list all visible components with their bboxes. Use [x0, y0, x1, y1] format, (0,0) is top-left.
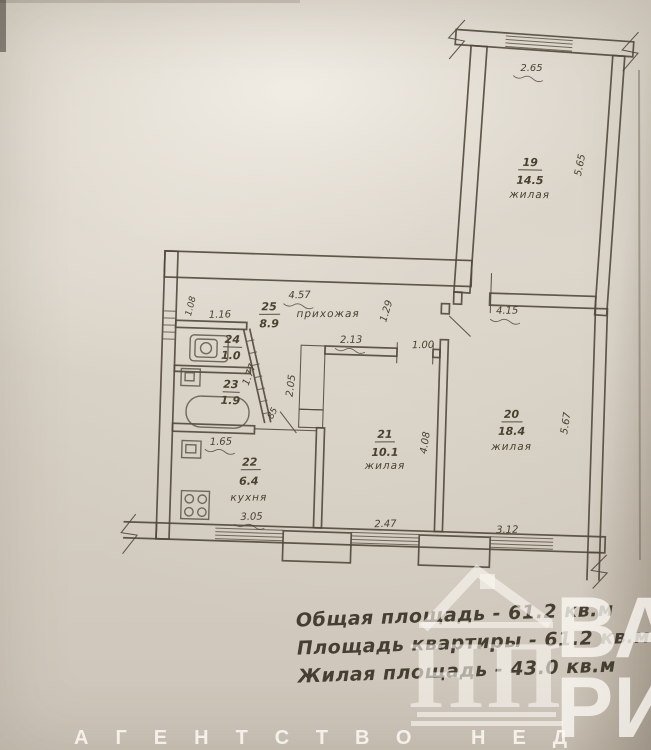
dim-wc-top: 1.16: [209, 309, 231, 320]
room-21-name: жилая: [364, 460, 406, 472]
wall-pier-1: [282, 531, 351, 563]
room-24-number: 24: [224, 333, 240, 346]
watermark-agency-text: АГЕНТСТВО НЕД: [74, 727, 594, 749]
page-fold-line: [639, 70, 640, 560]
dim-room21-window: 2.47: [374, 519, 397, 530]
dim-room21-right: 4.08: [419, 431, 433, 455]
room-25-area: 8.9: [259, 317, 279, 330]
room-19-name: жилая: [508, 189, 550, 202]
room19-left-wall: [454, 46, 487, 294]
scanned-floor-plan-page: 2.65 5.65 19 14.5 жилая: [0, 0, 651, 750]
dim-room19-right: 5.65: [573, 153, 588, 177]
room20-top-wall-a: [454, 292, 462, 304]
kitchen-window: [215, 528, 283, 541]
room-23-area: 1.9: [220, 394, 240, 408]
watermark-base-1: [417, 712, 556, 717]
room-19-label: 19 14.5 жилая: [508, 156, 551, 202]
room-20-number: 20: [504, 408, 520, 421]
room-20-label: 20 18.4 жилая: [490, 408, 532, 453]
room21-window: [351, 532, 419, 545]
room20-window: [490, 537, 553, 549]
dim-room20-right: 5.67: [559, 411, 573, 435]
room-22-name: кухня: [230, 492, 267, 504]
page-edge-top: [0, 0, 300, 3]
wall-stub-bl2: [123, 538, 156, 539]
dim-mark: [490, 319, 520, 325]
room-21-area: 10.1: [371, 446, 398, 459]
wall-pier-2: [418, 535, 490, 567]
left-wall-vent: [162, 311, 176, 339]
kitchen-door-sill: [255, 429, 317, 431]
room19-right-wall: [595, 55, 625, 315]
dim-corridor: 2.05: [285, 374, 299, 397]
dim-mark: [205, 449, 235, 455]
room-21-number: 21: [377, 428, 392, 441]
dim-room19-window: 2.65: [520, 63, 542, 74]
wall-break-top-left: [447, 19, 466, 60]
dim-hall-pass: 1.29: [378, 299, 395, 323]
dim-room20-window: 3.12: [496, 525, 518, 536]
dim-room21-top: 2.13: [340, 335, 362, 346]
room-22-label: 22 6.4 кухня: [230, 456, 267, 504]
floor-plan-svg: 2.65 5.65 19 14.5 жилая: [0, 0, 651, 750]
wall-break-bottom-left: [121, 514, 138, 554]
hall-top-wall: [164, 251, 472, 287]
room-24-label: 24 1.0: [221, 333, 243, 363]
watermark-base-2: [411, 721, 563, 726]
room-23-number: 23: [223, 378, 239, 391]
dim-room21-door: 1.00: [412, 340, 434, 351]
room-19-number: 19: [522, 156, 538, 169]
stove-icon: [181, 491, 210, 520]
wall-stub-br: [587, 552, 588, 580]
room-19-block: 2.65 5.65 19 14.5 жилая: [430, 19, 639, 317]
room21-left-wall: [313, 428, 324, 528]
room-23-underline: [223, 392, 240, 393]
room20-door-leaf: [449, 316, 472, 337]
divider-wall: [434, 340, 448, 532]
divider-wall-top: [441, 304, 449, 314]
agency-watermark: НП ВА РИ АГЕНТСТВО НЕД: [74, 571, 651, 750]
dim-bath-bottom: 1.65: [210, 437, 232, 448]
closet-upper: [299, 345, 325, 410]
dim-hall-top: 4.57: [288, 290, 311, 301]
dim-left-wall: 1.08: [184, 295, 199, 317]
dim-room20-top: 4.15: [496, 305, 518, 316]
room-19-area: 14.5: [516, 174, 544, 187]
watermark-chimney: [480, 574, 495, 589]
bath-bottom-wall: [172, 423, 254, 434]
room-24-underline: [223, 347, 242, 348]
right-outer-wall: [588, 308, 608, 552]
room-22-area: 6.4: [239, 475, 259, 488]
room-25-name: прихожая: [296, 308, 359, 320]
room-23-label: 23 1.9: [220, 378, 241, 408]
room21-top-wall-a: [325, 346, 397, 356]
dim-mark: [335, 348, 365, 354]
room19-top-wall: [455, 29, 634, 56]
dim-kitchen-window: 3.05: [240, 512, 262, 523]
door-tick: [490, 273, 491, 313]
wall-stub-br2: [599, 553, 600, 581]
room-20-name: жилая: [490, 441, 532, 453]
left-outer-wall: [156, 251, 178, 539]
room-25-label: 25 8.9 прихожая: [259, 300, 360, 330]
room-25-number: 25: [261, 300, 277, 313]
kitchen-sink-icon: [182, 441, 202, 459]
room-24-area: 1.0: [221, 349, 241, 363]
room-21-label: 21 10.1 жилая: [363, 428, 405, 472]
floor-plan: 2.65 5.65 19 14.5 жилая: [120, 9, 640, 589]
wc-top-wall: [176, 320, 247, 329]
door-tick-21a: [397, 342, 398, 363]
page-edge-mark: [0, 0, 6, 52]
room-20-area: 18.4: [498, 425, 525, 438]
room-22-number: 22: [242, 456, 258, 469]
closet-lower: [299, 409, 324, 428]
scan-artifacts: [0, 0, 640, 560]
dim-mark: [513, 75, 543, 82]
